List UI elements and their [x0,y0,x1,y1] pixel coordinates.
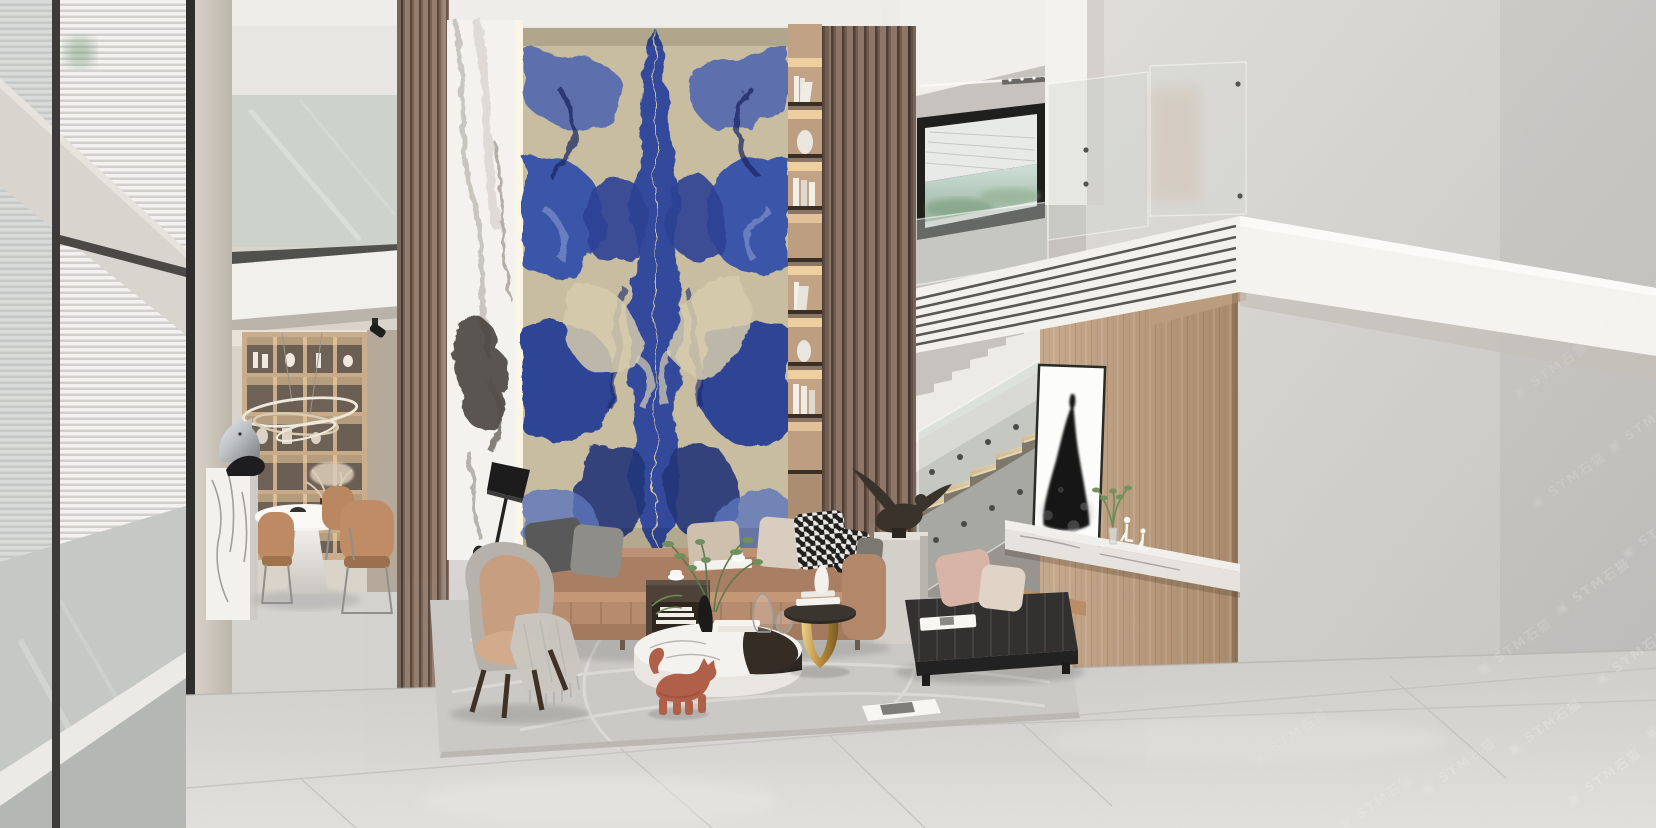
blue-sodalite-marble-wall [523,28,788,558]
sofa-arm-right [842,554,886,640]
scene-svg [0,0,1656,828]
villa-living-room-render: ▣ STM石猫▣ STM石猫▣ STM石猫▣ STM石猫▣ STM石猫▣ STM… [0,0,1656,828]
window-mullion [52,0,60,828]
left-curtain-wall-window [0,0,195,828]
backlit-display-niche [788,24,822,560]
dining-nook [206,95,400,705]
mezzanine-corner-glass [1048,62,1246,240]
marble-pedestal [206,468,258,620]
dress-artwork [1033,365,1105,551]
